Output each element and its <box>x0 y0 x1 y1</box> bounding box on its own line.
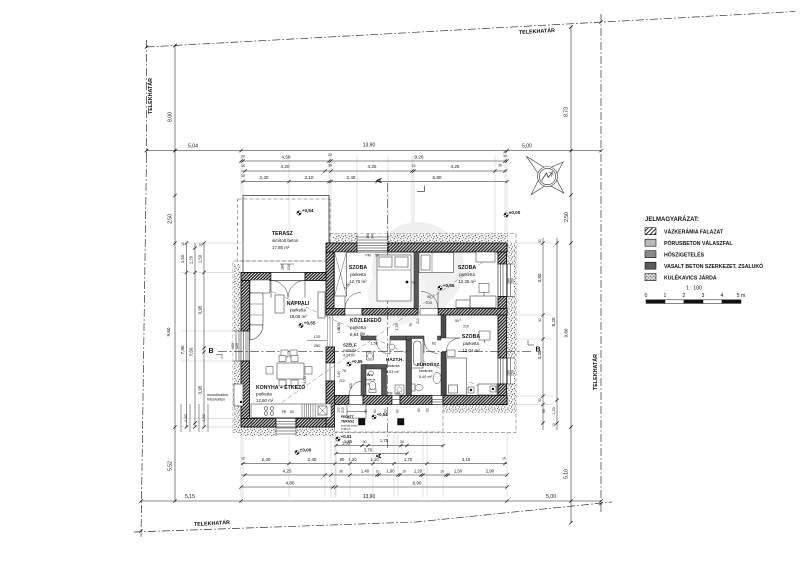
svg-text:9,20: 9,20 <box>415 155 424 160</box>
svg-text:8,73: 8,73 <box>564 107 570 117</box>
svg-text:2,90: 2,90 <box>486 469 495 474</box>
svg-text:9,60: 9,60 <box>166 327 171 336</box>
svg-text:4,25: 4,25 <box>451 164 460 169</box>
svg-text:3,95: 3,95 <box>198 385 203 394</box>
svg-text:5,04: 5,04 <box>188 144 198 150</box>
svg-text:0: 0 <box>645 293 648 299</box>
svg-text:30: 30 <box>538 239 542 243</box>
svg-text:simított beton: simított beton <box>272 238 299 243</box>
svg-text:5,00: 5,00 <box>546 494 556 500</box>
svg-text:210: 210 <box>287 264 291 270</box>
svg-text:250: 250 <box>314 343 321 348</box>
svg-text:10: 10 <box>502 457 506 461</box>
svg-text:1,58: 1,58 <box>370 342 377 346</box>
svg-text:13,90: 13,90 <box>363 494 376 500</box>
svg-text:kerámia: kerámia <box>365 378 376 382</box>
svg-text:8,20: 8,20 <box>551 317 556 326</box>
svg-text:PM: PM <box>388 392 393 396</box>
svg-text:1,38: 1,38 <box>337 323 341 330</box>
svg-text:2,98 m²: 2,98 m² <box>341 427 351 431</box>
svg-text:3,70: 3,70 <box>364 448 373 453</box>
svg-text:A: A <box>376 453 383 458</box>
svg-text:2,40: 2,40 <box>262 457 271 462</box>
svg-text:4,50: 4,50 <box>184 414 188 421</box>
svg-text:180: 180 <box>366 233 370 239</box>
svg-text:SZOBA: SZOBA <box>462 334 480 340</box>
svg-text:+0,55: +0,55 <box>304 321 316 326</box>
svg-text:30: 30 <box>503 150 507 154</box>
svg-text:2,40: 2,40 <box>347 175 356 180</box>
svg-text:KONYHA + ÉTKEZŐ: KONYHA + ÉTKEZŐ <box>256 383 305 391</box>
svg-text:SZOBA: SZOBA <box>349 265 367 271</box>
svg-text:920: 920 <box>349 383 353 389</box>
svg-text:PM: PM <box>365 254 370 258</box>
svg-text:kerámia: kerámia <box>386 364 400 368</box>
svg-text:120: 120 <box>314 334 321 339</box>
svg-text:±0,00: ±0,00 <box>300 448 312 453</box>
svg-text:4,50: 4,50 <box>282 155 291 160</box>
svg-text:1,50: 1,50 <box>202 414 206 421</box>
svg-text:30: 30 <box>363 440 367 444</box>
svg-text:SZOBA: SZOBA <box>458 265 476 271</box>
svg-text:1,60: 1,60 <box>337 371 341 378</box>
svg-text:100: 100 <box>337 407 341 413</box>
svg-text:1,50: 1,50 <box>198 254 203 263</box>
svg-text:30: 30 <box>538 318 542 322</box>
svg-text:kerámia: kerámia <box>419 369 433 373</box>
svg-text:62: 62 <box>432 342 436 346</box>
svg-text:10: 10 <box>402 470 406 474</box>
svg-text:5,03 m²: 5,03 m² <box>386 370 400 374</box>
svg-text:5,00: 5,00 <box>522 144 532 150</box>
svg-text:4,80: 4,80 <box>286 481 295 486</box>
svg-text:parketta: parketta <box>350 272 366 277</box>
svg-text:1,20: 1,20 <box>348 457 357 462</box>
svg-text:120: 120 <box>235 343 239 349</box>
svg-text:210: 210 <box>341 407 345 413</box>
svg-text:monoblokkos: monoblokkos <box>207 393 228 397</box>
svg-text:3,80: 3,80 <box>537 273 542 282</box>
svg-text:4,10: 4,10 <box>462 457 471 462</box>
svg-text:1,39: 1,39 <box>395 324 399 331</box>
svg-text:HÁZT.H.: HÁZT.H. <box>386 356 404 362</box>
svg-text:TELEKHATÁR: TELEKHATÁR <box>147 78 154 114</box>
svg-text:60: 60 <box>373 409 377 413</box>
svg-text:60: 60 <box>290 410 294 414</box>
svg-text:parketta: parketta <box>463 341 479 346</box>
svg-text:5 m: 5 m <box>737 293 746 299</box>
svg-text:2,50: 2,50 <box>564 212 570 222</box>
svg-text:210: 210 <box>339 379 345 383</box>
svg-text:5,40 m²: 5,40 m² <box>419 375 433 379</box>
svg-text:13,90: 13,90 <box>363 143 376 149</box>
svg-text:30: 30 <box>400 440 404 444</box>
svg-text:VÁZKERÁMIA FALAZAT: VÁZKERÁMIA FALAZAT <box>664 229 724 236</box>
svg-text:parketta: parketta <box>343 349 356 353</box>
svg-text:12,35 m²: 12,35 m² <box>458 279 476 284</box>
svg-text:1: 1 <box>664 293 667 299</box>
svg-text:5,15: 5,15 <box>185 494 195 500</box>
svg-text:parketta: parketta <box>459 272 475 277</box>
svg-text:2,40: 2,40 <box>260 175 269 180</box>
svg-text:5,52: 5,52 <box>168 461 174 471</box>
svg-text:4,20: 4,20 <box>283 469 292 474</box>
svg-text:90: 90 <box>375 254 379 258</box>
svg-text:7,50: 7,50 <box>189 347 194 356</box>
svg-text:30: 30 <box>339 470 343 474</box>
svg-text:60: 60 <box>364 409 368 413</box>
svg-text:SZÉLF.: SZÉLF. <box>343 343 357 348</box>
svg-text:4,34 m²: 4,34 m² <box>343 354 356 358</box>
svg-text:3,95: 3,95 <box>198 305 203 314</box>
svg-text:TELEKHATÁR: TELEKHATÁR <box>592 354 599 390</box>
svg-text:75: 75 <box>411 281 415 285</box>
svg-text:1,35: 1,35 <box>342 441 351 446</box>
svg-text:210: 210 <box>426 301 432 305</box>
svg-text:210: 210 <box>416 318 420 324</box>
svg-text:1,20: 1,20 <box>414 469 423 474</box>
svg-text:8,00: 8,00 <box>168 112 174 122</box>
svg-text:S: S <box>460 318 462 322</box>
svg-text:90: 90 <box>455 319 459 323</box>
svg-text:±0,00: ±0,00 <box>509 210 521 215</box>
svg-text:4,20: 4,20 <box>281 164 290 169</box>
svg-text:NAPPALI: NAPPALI <box>287 301 310 307</box>
svg-text:1,40: 1,40 <box>361 469 370 474</box>
svg-text:6,80: 6,80 <box>433 175 442 180</box>
svg-text:60: 60 <box>396 392 400 396</box>
svg-text:12,75 m²: 12,75 m² <box>349 279 367 284</box>
svg-text:30: 30 <box>328 164 332 168</box>
svg-text:1 : 100: 1 : 100 <box>686 286 702 292</box>
svg-text:12,60 m²: 12,60 m² <box>256 398 274 403</box>
svg-text:4,00: 4,00 <box>302 375 307 384</box>
svg-text:PB: PB <box>282 410 287 414</box>
svg-text:2,50: 2,50 <box>168 214 174 224</box>
svg-text:1,50: 1,50 <box>454 469 463 474</box>
svg-text:12,04 m²: 12,04 m² <box>462 348 480 353</box>
svg-text:B: B <box>535 347 540 354</box>
svg-text:KÖZLEKEDŐ: KÖZLEKEDŐ <box>350 317 382 324</box>
svg-text:76: 76 <box>342 369 346 373</box>
svg-text:4: 4 <box>721 293 724 299</box>
svg-text:150: 150 <box>511 370 515 376</box>
svg-text:90: 90 <box>542 409 546 413</box>
svg-text:JELMAGYARÁZAT:: JELMAGYARÁZAT: <box>645 216 699 223</box>
svg-text:60: 60 <box>426 408 430 412</box>
svg-text:90: 90 <box>427 295 431 299</box>
svg-text:HŐSZIGETELÉS: HŐSZIGETELÉS <box>664 251 705 259</box>
svg-text:30: 30 <box>498 164 502 168</box>
svg-text:80: 80 <box>340 457 345 462</box>
svg-text:+0,55: +0,55 <box>352 359 363 364</box>
svg-text:18,06 m²: 18,06 m² <box>289 314 307 319</box>
svg-text:3: 3 <box>702 293 705 299</box>
svg-text:B: B <box>208 348 213 355</box>
svg-text:30: 30 <box>328 153 332 157</box>
svg-text:4,25: 4,25 <box>368 164 377 169</box>
svg-text:parketta: parketta <box>290 308 306 313</box>
svg-text:1,20: 1,20 <box>552 407 556 414</box>
svg-text:1,50: 1,50 <box>180 254 185 263</box>
svg-text:1,20: 1,20 <box>189 255 194 264</box>
svg-text:240: 240 <box>371 233 375 239</box>
svg-text:+0,55: +0,55 <box>443 283 455 288</box>
svg-text:180: 180 <box>281 264 285 270</box>
svg-text:KULÉKAVICS JÁRDA: KULÉKAVICS JÁRDA <box>664 274 717 282</box>
svg-text:75: 75 <box>409 323 413 327</box>
svg-text:150: 150 <box>511 278 515 284</box>
svg-text:2,10: 2,10 <box>305 175 314 180</box>
svg-text:5,10: 5,10 <box>564 469 570 479</box>
svg-text:TERASZ: TERASZ <box>272 231 294 237</box>
svg-text:PÓRUSBETON VÁLASZFAL: PÓRUSBETON VÁLASZFAL <box>664 239 733 247</box>
svg-text:10: 10 <box>440 470 444 474</box>
svg-text:60: 60 <box>384 409 388 413</box>
svg-text:10: 10 <box>181 242 185 246</box>
svg-text:FÜRDŐSZ.: FÜRDŐSZ. <box>417 361 440 367</box>
svg-text:7,90: 7,90 <box>180 345 185 354</box>
svg-text:A: A <box>375 177 384 183</box>
svg-text:2,40: 2,40 <box>308 457 317 462</box>
svg-text:parketta: parketta <box>350 325 366 330</box>
svg-text:210: 210 <box>463 325 469 329</box>
svg-text:parketta: parketta <box>256 392 272 397</box>
svg-text:17,85 m²: 17,85 m² <box>272 245 290 250</box>
svg-text:+0,01: +0,01 <box>341 434 352 439</box>
svg-text:90: 90 <box>417 408 421 412</box>
svg-text:2: 2 <box>683 293 686 299</box>
svg-text:60: 60 <box>396 409 400 413</box>
svg-text:6,84 m²: 6,84 m² <box>350 332 365 337</box>
svg-text:1,70: 1,70 <box>404 457 413 462</box>
svg-text:10: 10 <box>199 243 203 247</box>
svg-text:10: 10 <box>376 470 380 474</box>
svg-text:VASALT BETON SZERKEZET, ZSALUK: VASALT BETON SZERKEZET, ZSALUKÓ <box>664 262 763 270</box>
svg-text:+0,54: +0,54 <box>302 208 314 213</box>
svg-text:8,90: 8,90 <box>413 481 422 486</box>
svg-text:10: 10 <box>552 423 556 427</box>
svg-text:30: 30 <box>538 398 542 402</box>
svg-text:9,60: 9,60 <box>564 328 569 337</box>
svg-text:hőszivattyú: hőszivattyú <box>207 398 225 402</box>
